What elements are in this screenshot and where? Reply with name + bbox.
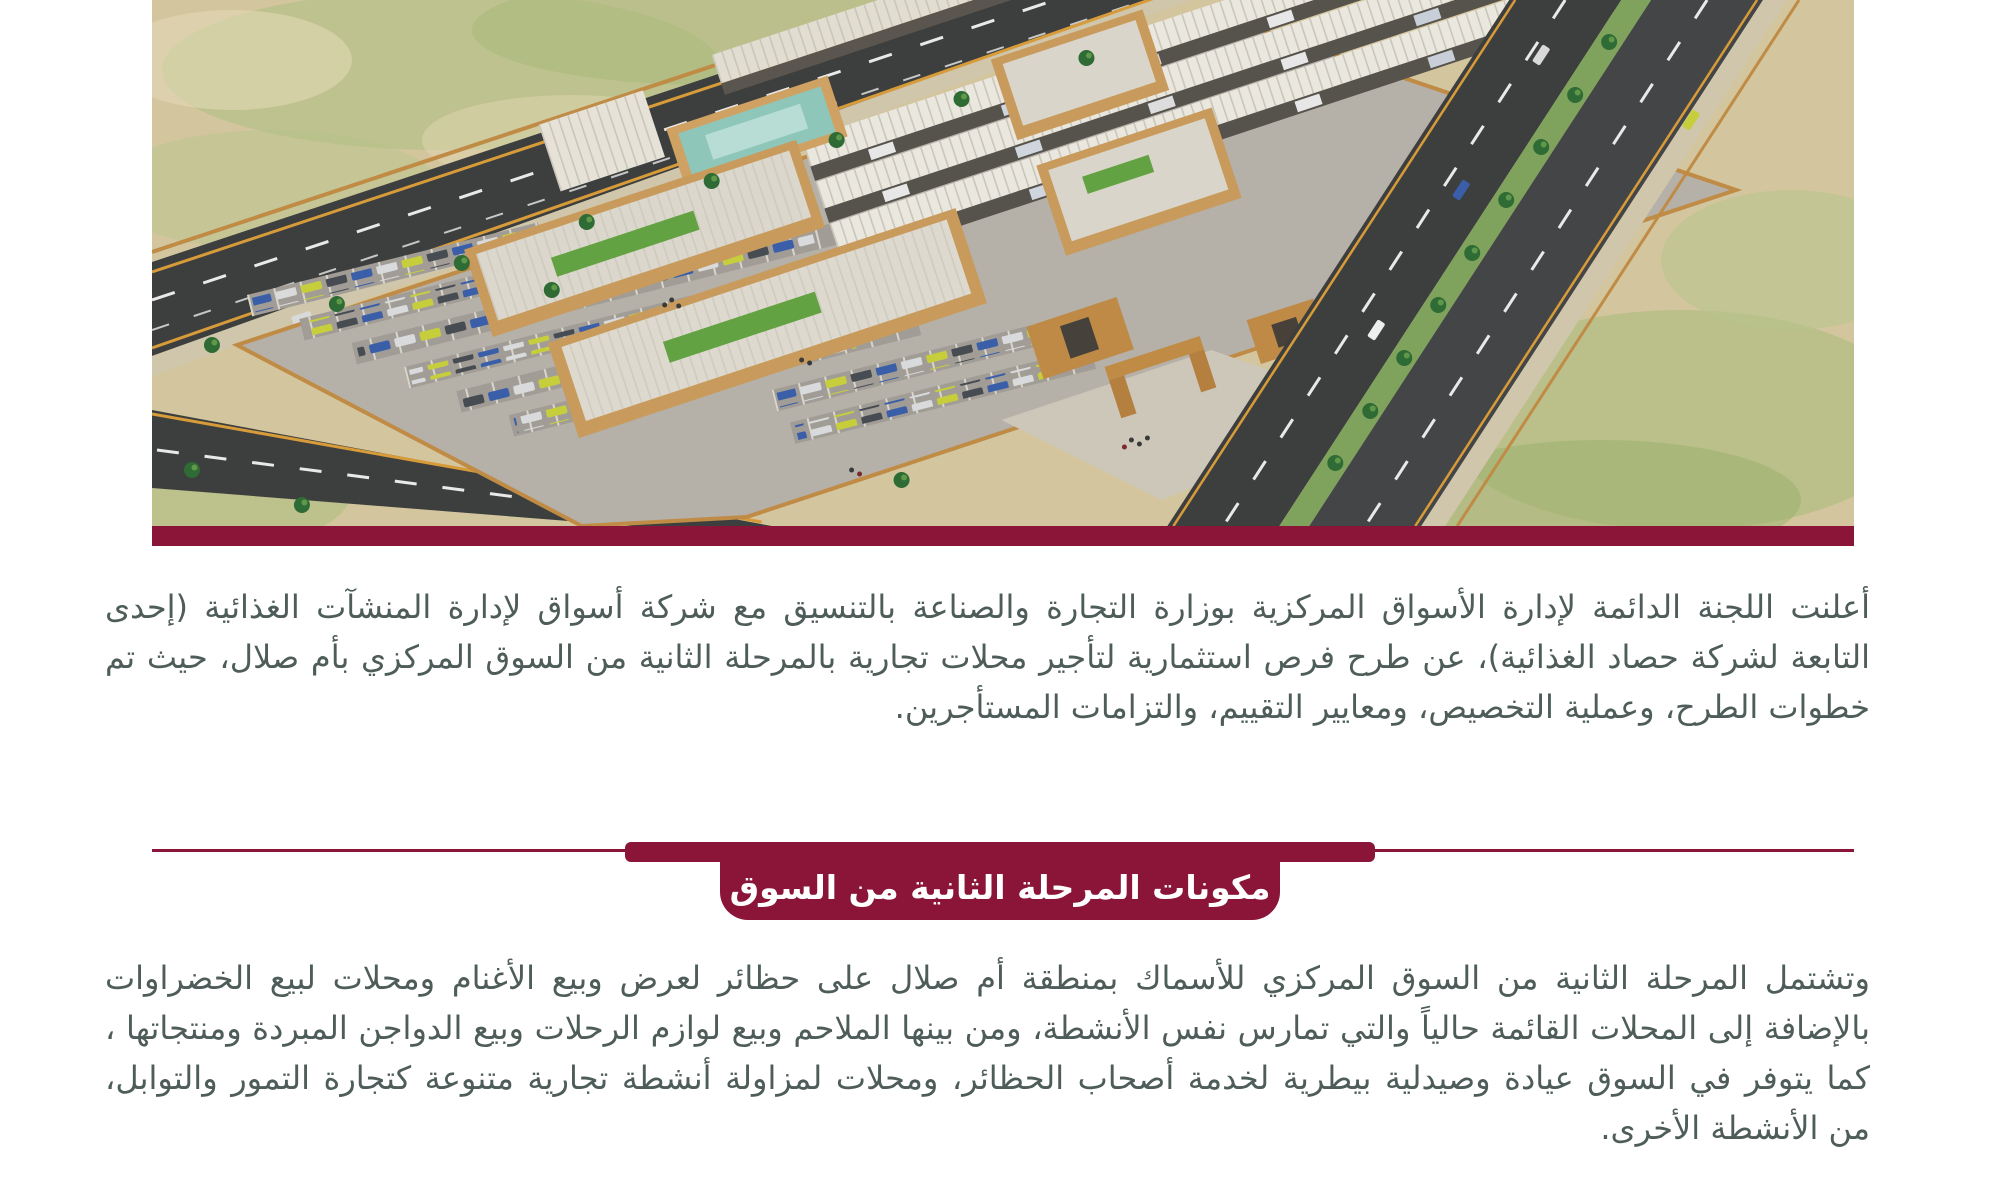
paragraph-line: بالإضافة إلى المحلات القائمة حالياً والت… [105, 1003, 1870, 1053]
paragraph-line: من الأنشطة الأخرى. [105, 1103, 1870, 1153]
paragraph-line: خطوات الطرح، وعملية التخصيص، ومعايير الت… [105, 682, 1870, 732]
section-banner: مكونات المرحلة الثانية من السوق [720, 858, 1280, 920]
hero-image-illustration [152, 0, 1854, 526]
paragraph-line: أعلنت اللجنة الدائمة لإدارة الأسواق المر… [105, 582, 1870, 632]
section-banner-title: مكونات المرحلة الثانية من السوق [730, 868, 1271, 911]
intro-paragraph: أعلنت اللجنة الدائمة لإدارة الأسواق المر… [105, 582, 1870, 732]
body-paragraph: وتشتمل المرحلة الثانية من السوق المركزي … [105, 953, 1870, 1153]
paragraph-line: وتشتمل المرحلة الثانية من السوق المركزي … [105, 953, 1870, 1003]
hero-image [152, 0, 1854, 526]
paragraph-line: التابعة لشركة حصاد الغذائية)، عن طرح فرص… [105, 632, 1870, 682]
paragraph-line: كما يتوفر في السوق عيادة وصيدلية بيطرية … [105, 1053, 1870, 1103]
hero-bottom-bar [152, 526, 1854, 546]
article-page: { "theme": { "accent_maroon": "#8A1538",… [0, 0, 2000, 1200]
